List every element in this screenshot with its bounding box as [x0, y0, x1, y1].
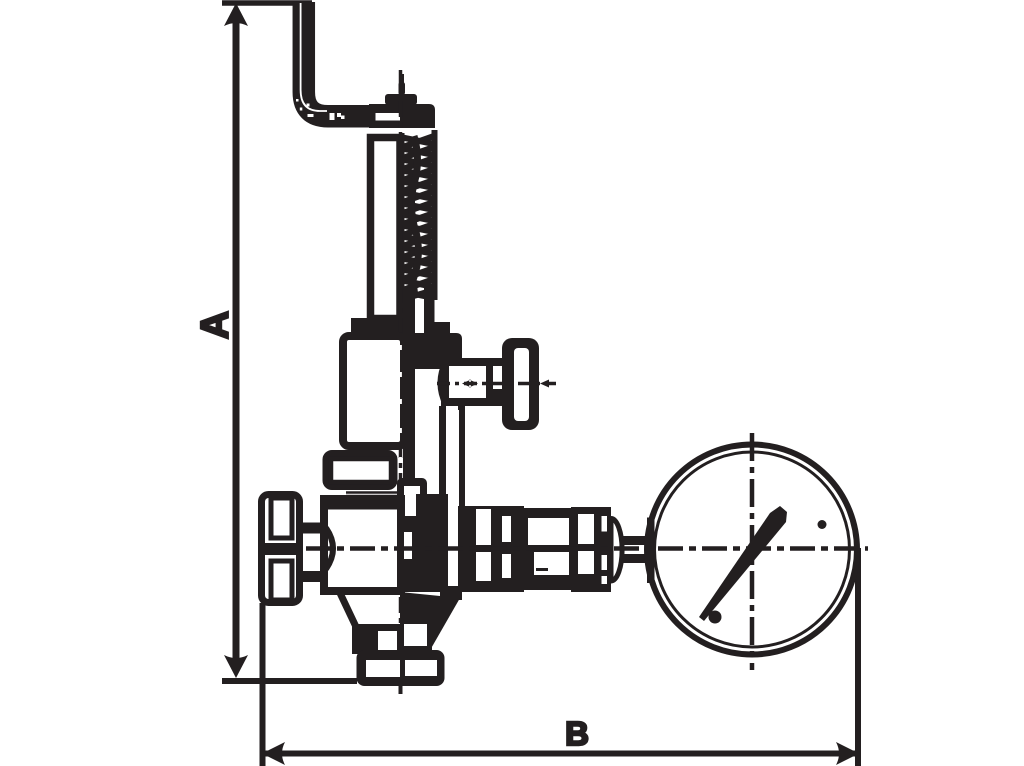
svg-text:B: B: [565, 715, 589, 752]
svg-text:A: A: [194, 311, 237, 339]
